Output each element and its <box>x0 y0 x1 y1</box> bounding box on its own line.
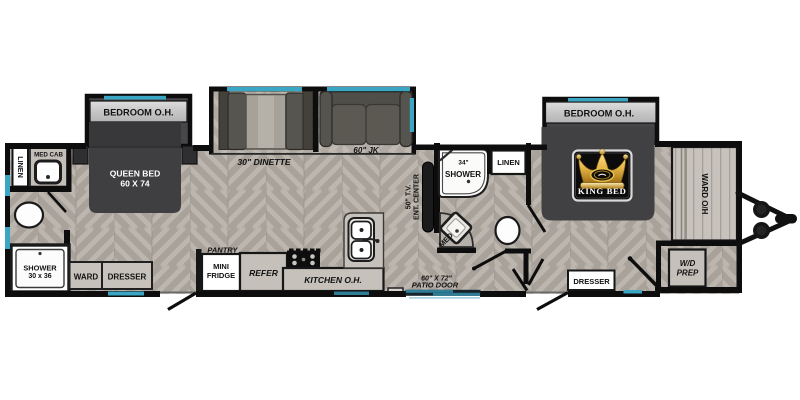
svg-text:PATIO DOOR: PATIO DOOR <box>412 281 459 290</box>
svg-text:60 X 74: 60 X 74 <box>120 179 150 189</box>
svg-text:DRESSER: DRESSER <box>573 277 610 286</box>
svg-text:W/D: W/D <box>680 259 696 268</box>
svg-text:REFER: REFER <box>249 268 279 278</box>
svg-text:MED CAB: MED CAB <box>34 152 63 159</box>
svg-text:DRESSER: DRESSER <box>108 273 147 282</box>
svg-text:BEDROOM O.H.: BEDROOM O.H. <box>564 109 634 119</box>
svg-text:30" DINETTE: 30" DINETTE <box>237 157 292 167</box>
svg-text:BEDROOM O.H.: BEDROOM O.H. <box>103 108 173 118</box>
svg-text:50" T.V.: 50" T.V. <box>406 185 413 210</box>
svg-text:MINI: MINI <box>213 262 229 271</box>
svg-text:34": 34" <box>458 160 468 167</box>
svg-text:WARD: WARD <box>74 273 99 282</box>
svg-text:30 x 36: 30 x 36 <box>28 273 51 280</box>
svg-text:PREP: PREP <box>677 269 699 278</box>
svg-text:KING BED: KING BED <box>578 186 627 196</box>
svg-text:QUEEN BED: QUEEN BED <box>110 169 161 179</box>
svg-text:WARD O/H: WARD O/H <box>700 174 709 215</box>
svg-text:KITCHEN O.H.: KITCHEN O.H. <box>304 275 362 285</box>
svg-text:FRIDGE: FRIDGE <box>207 271 235 280</box>
svg-text:SHOWER: SHOWER <box>23 264 57 273</box>
svg-text:LINEN: LINEN <box>16 156 25 178</box>
svg-text:LINEN: LINEN <box>497 158 520 167</box>
svg-text:ENT. CENTER: ENT. CENTER <box>414 174 421 220</box>
svg-text:SHOWER: SHOWER <box>445 170 481 179</box>
svg-text:60" JK: 60" JK <box>353 146 379 155</box>
